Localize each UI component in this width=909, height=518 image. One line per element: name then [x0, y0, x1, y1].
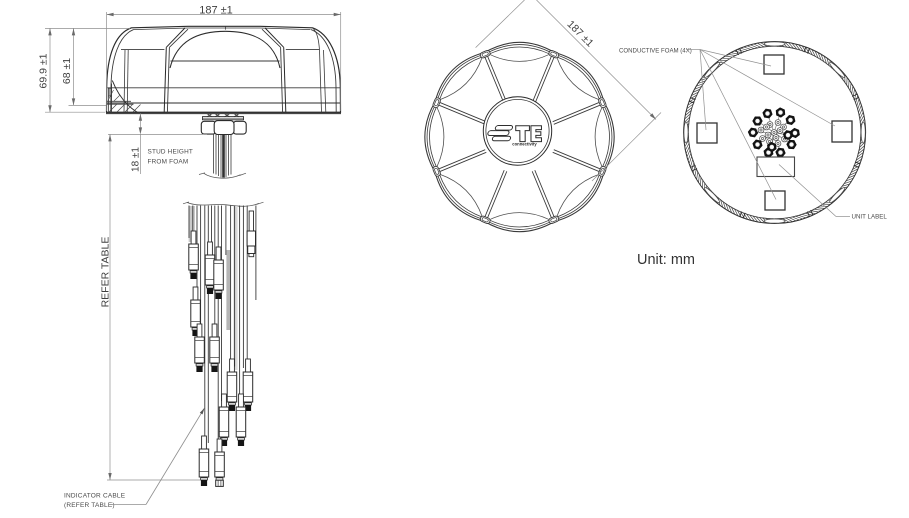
svg-text:STUD HEIGHT: STUD HEIGHT: [148, 149, 194, 156]
svg-text:FROM FOAM: FROM FOAM: [148, 158, 189, 165]
svg-text:187 ±1: 187 ±1: [199, 5, 233, 17]
svg-text:68 ±1: 68 ±1: [61, 58, 73, 84]
svg-text:INDICATOR CABLE: INDICATOR CABLE: [64, 493, 126, 500]
svg-text:REFER TABLE: REFER TABLE: [100, 237, 112, 308]
svg-text:69.9 ±1: 69.9 ±1: [38, 53, 50, 88]
svg-text:18 ±1: 18 ±1: [131, 147, 142, 172]
svg-text:CONDUCTIVE FOAM (4X): CONDUCTIVE FOAM (4X): [619, 48, 692, 55]
svg-text:connectivity: connectivity: [512, 142, 537, 147]
svg-text:UNIT LABEL: UNIT LABEL: [852, 214, 888, 221]
svg-text:Unit: mm: Unit: mm: [637, 252, 695, 268]
svg-text:(REFER TABLE): (REFER TABLE): [64, 502, 115, 509]
